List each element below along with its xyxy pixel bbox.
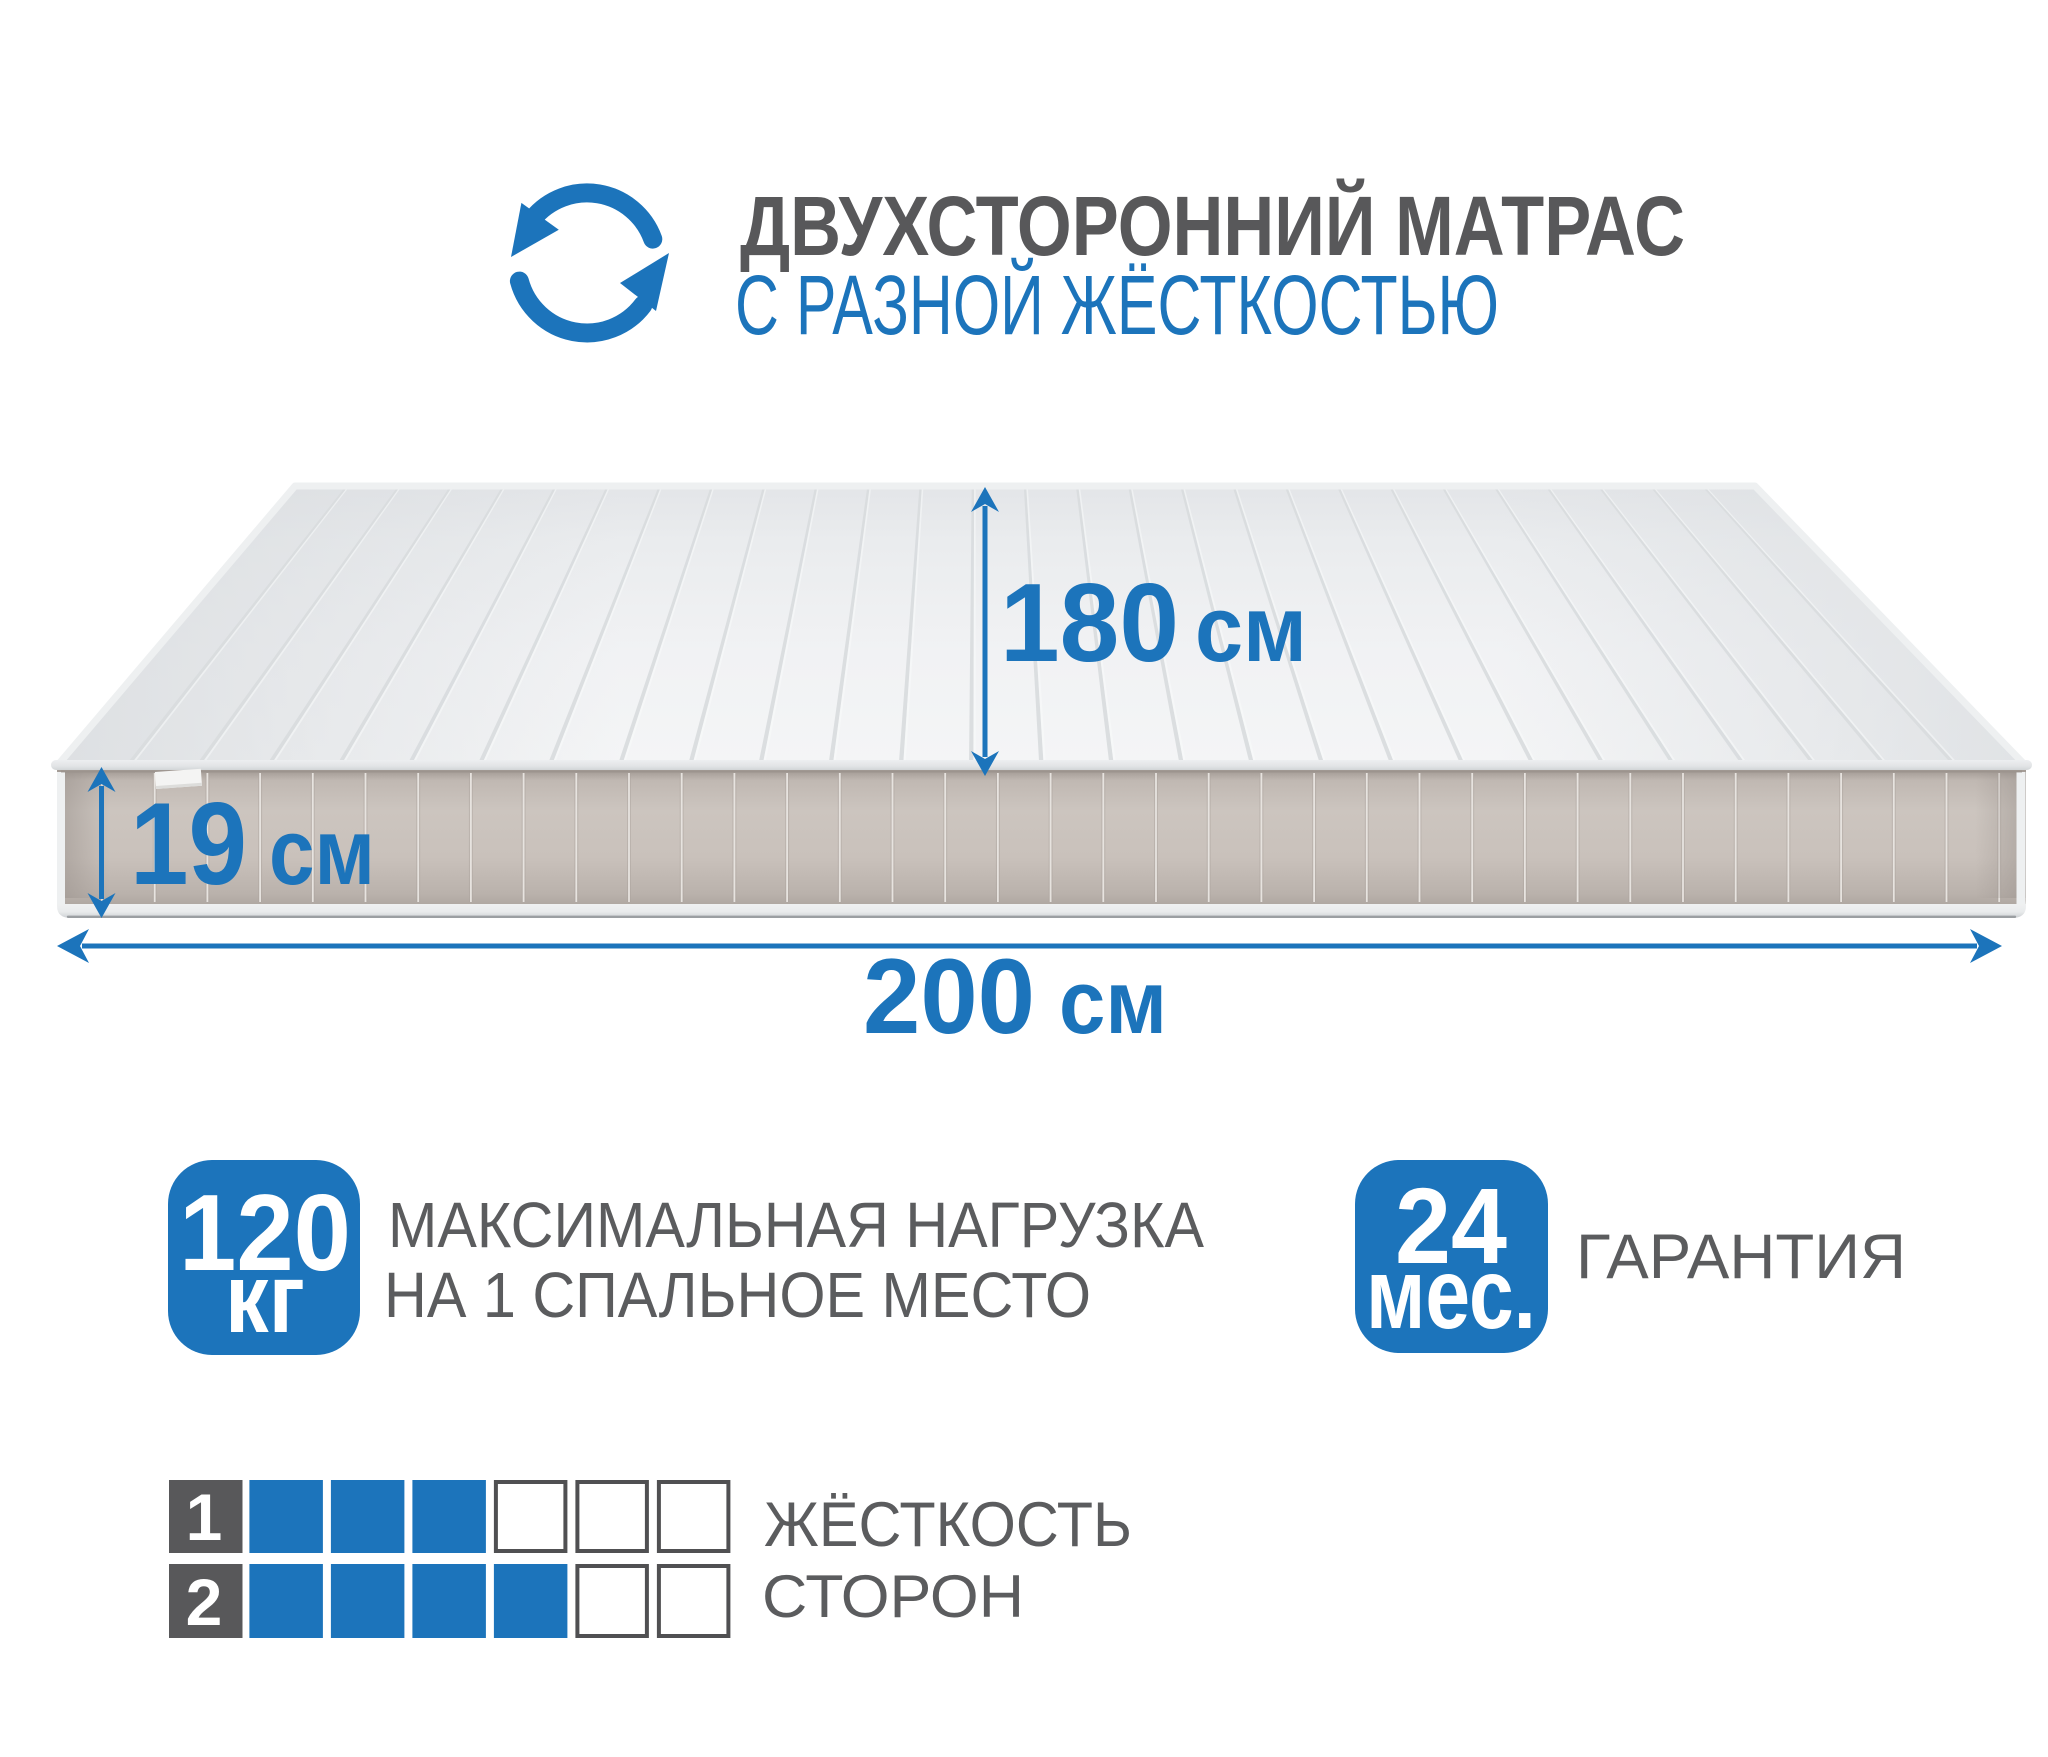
svg-text:см: см: [1059, 953, 1167, 1053]
svg-text:1: 1: [186, 1480, 223, 1554]
svg-text:200: 200: [863, 936, 1035, 1056]
svg-text:С РАЗНОЙ ЖЁСТКОСТЬЮ: С РАЗНОЙ ЖЁСТКОСТЬЮ: [735, 258, 1499, 352]
svg-text:ГАРАНТИЯ: ГАРАНТИЯ: [1576, 1222, 1906, 1292]
svg-text:см: см: [1195, 576, 1307, 681]
svg-text:мес.: мес.: [1366, 1238, 1536, 1350]
svg-text:ЖЁСТКОСТЬ: ЖЁСТКОСТЬ: [764, 1490, 1132, 1560]
svg-text:МАКСИМАЛЬНАЯ НАГРУЗКА: МАКСИМАЛЬНАЯ НАГРУЗКА: [388, 1189, 1204, 1261]
svg-text:НА 1 СПАЛЬНОЕ МЕСТО: НА 1 СПАЛЬНОЕ МЕСТО: [384, 1259, 1091, 1331]
svg-text:см: см: [269, 799, 375, 904]
svg-text:180: 180: [1000, 561, 1179, 685]
svg-text:СТОРОН: СТОРОН: [762, 1563, 1024, 1630]
svg-text:19: 19: [130, 778, 247, 909]
svg-text:кг: кг: [225, 1243, 305, 1353]
svg-text:2: 2: [186, 1565, 223, 1639]
